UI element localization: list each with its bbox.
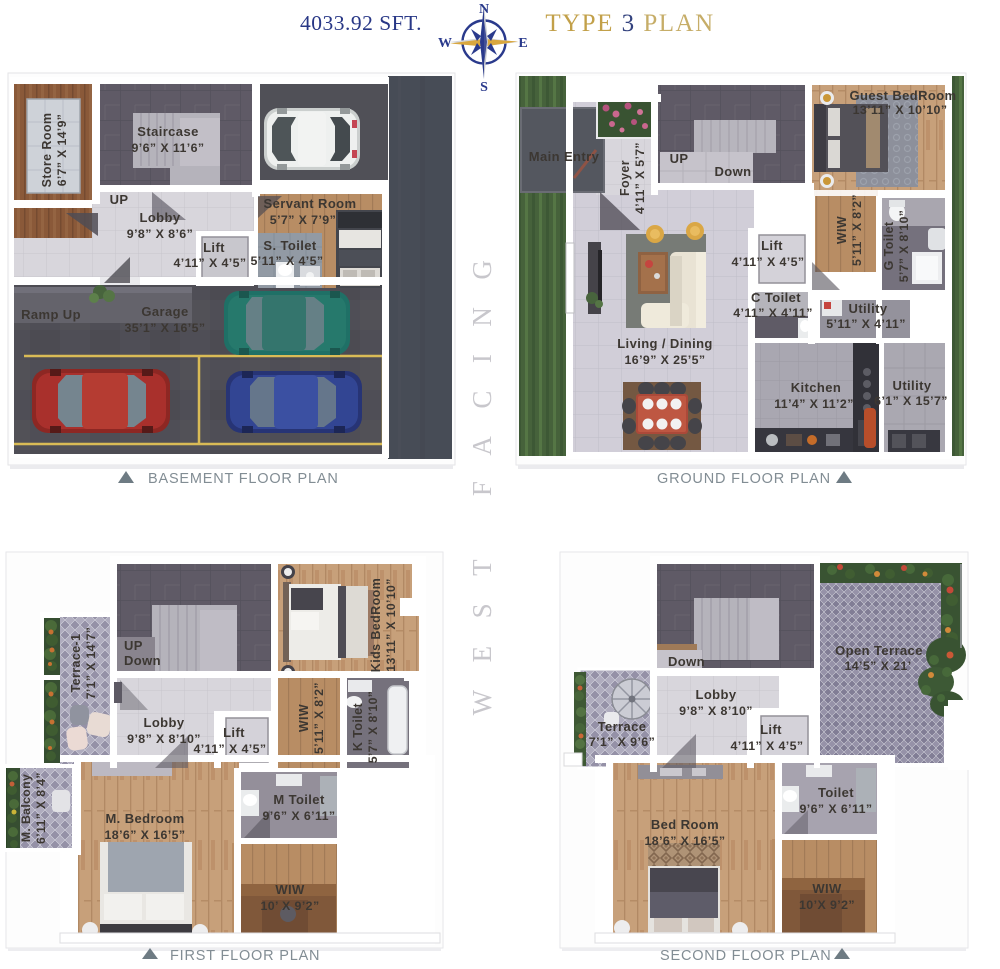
svg-text:GROUND FLOOR PLAN: GROUND FLOOR PLAN <box>657 471 831 487</box>
svg-text:E: E <box>518 36 527 51</box>
svg-text:TYPE 3 PLAN: TYPE 3 PLAN <box>545 10 714 37</box>
svg-text:WEST FACING: WEST FACING <box>467 233 497 716</box>
svg-text:S: S <box>480 80 488 95</box>
svg-text:FIRST FLOOR PLAN: FIRST FLOOR PLAN <box>170 948 320 964</box>
svg-text:N: N <box>479 2 489 17</box>
svg-text:BASEMENT FLOOR PLAN: BASEMENT FLOOR PLAN <box>148 471 339 487</box>
svg-text:W: W <box>438 36 452 51</box>
svg-text:SECOND FLOOR PLAN: SECOND FLOOR PLAN <box>660 948 832 964</box>
svg-text:4033.92 SFT.: 4033.92 SFT. <box>300 11 422 35</box>
